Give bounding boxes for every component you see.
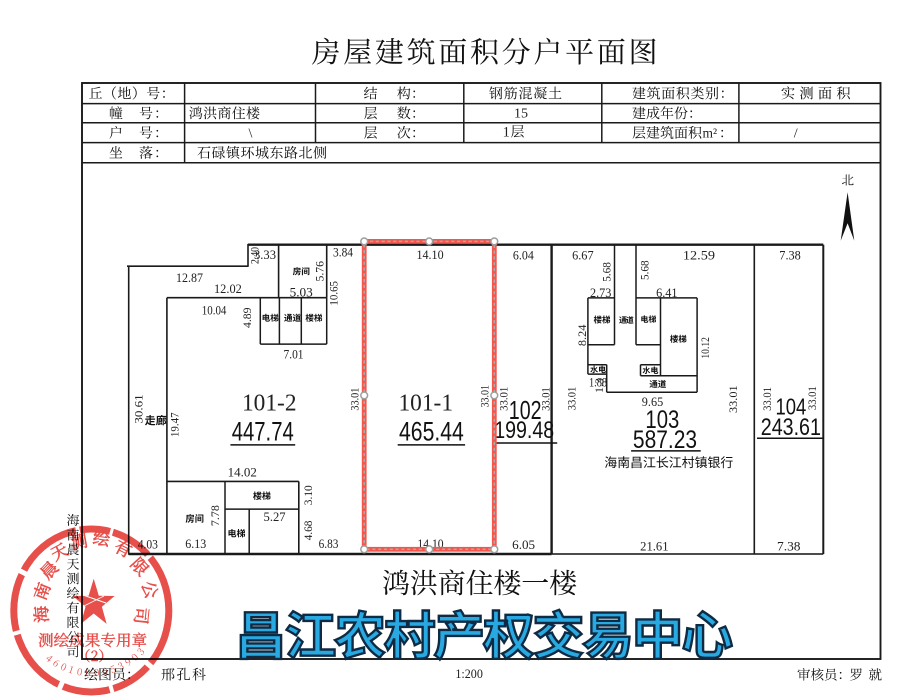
svg-text:21.61: 21.61 [640, 539, 668, 553]
svg-text:447.74: 447.74 [232, 416, 294, 446]
svg-text:33.01: 33.01 [566, 386, 578, 410]
svg-text:6.83: 6.83 [319, 537, 339, 551]
svg-text:243.61: 243.61 [761, 414, 821, 441]
svg-text:33.01: 33.01 [349, 387, 361, 410]
svg-text:14.02: 14.02 [228, 465, 257, 479]
svg-text:101-2: 101-2 [242, 391, 297, 417]
svg-text:33.01: 33.01 [728, 385, 740, 413]
svg-text:101-1: 101-1 [399, 391, 454, 417]
svg-text:6.41: 6.41 [656, 286, 677, 300]
svg-text:465.44: 465.44 [399, 416, 464, 446]
svg-text:6.05: 6.05 [512, 538, 535, 552]
svg-text:33.01: 33.01 [479, 385, 491, 408]
svg-text:\: \ [249, 127, 253, 142]
svg-text:1:200: 1:200 [455, 667, 483, 681]
svg-text:5.03: 5.03 [290, 286, 313, 300]
svg-text:587.23: 587.23 [633, 426, 697, 454]
svg-text:5.27: 5.27 [264, 510, 286, 524]
svg-text:10.65: 10.65 [329, 281, 341, 306]
svg-text:4.89: 4.89 [242, 307, 254, 328]
svg-text:5.68: 5.68 [639, 260, 651, 280]
svg-text:14.10: 14.10 [417, 248, 444, 262]
svg-text:12.87: 12.87 [176, 271, 203, 285]
svg-text:10.04: 10.04 [202, 303, 227, 317]
svg-text:4.68: 4.68 [303, 520, 315, 540]
svg-text:/: / [794, 127, 798, 142]
svg-text:7.78: 7.78 [210, 505, 222, 526]
svg-text:19.47: 19.47 [170, 412, 182, 437]
svg-text:5.68: 5.68 [602, 262, 614, 282]
svg-text:6.67: 6.67 [572, 248, 594, 262]
svg-text:6.04: 6.04 [513, 248, 535, 262]
svg-text:7.38: 7.38 [777, 539, 801, 553]
svg-text:3.84: 3.84 [333, 246, 354, 260]
svg-text:3.10: 3.10 [303, 485, 315, 505]
svg-text:7.01: 7.01 [284, 347, 304, 361]
svg-text:33.01: 33.01 [540, 387, 552, 411]
svg-text:m²: m² [703, 126, 718, 141]
svg-text:33.01: 33.01 [762, 387, 774, 411]
svg-text:2.73: 2.73 [590, 286, 611, 300]
svg-text:33.01: 33.01 [807, 386, 819, 410]
svg-text:199.48: 199.48 [494, 417, 554, 444]
svg-text:12.02: 12.02 [214, 282, 242, 296]
svg-text:8.24: 8.24 [577, 324, 589, 346]
svg-text:1: 1 [503, 125, 510, 141]
svg-text:2.40: 2.40 [250, 247, 262, 264]
svg-text:10.12: 10.12 [700, 337, 712, 359]
svg-text:6.13: 6.13 [185, 537, 206, 551]
svg-text:15: 15 [514, 107, 528, 122]
svg-text:12.59: 12.59 [683, 248, 715, 262]
svg-text:7.38: 7.38 [779, 248, 801, 262]
svg-text:30.61: 30.61 [134, 394, 146, 423]
svg-text:1.3: 1.3 [594, 378, 606, 393]
svg-text:5.76: 5.76 [314, 261, 326, 282]
